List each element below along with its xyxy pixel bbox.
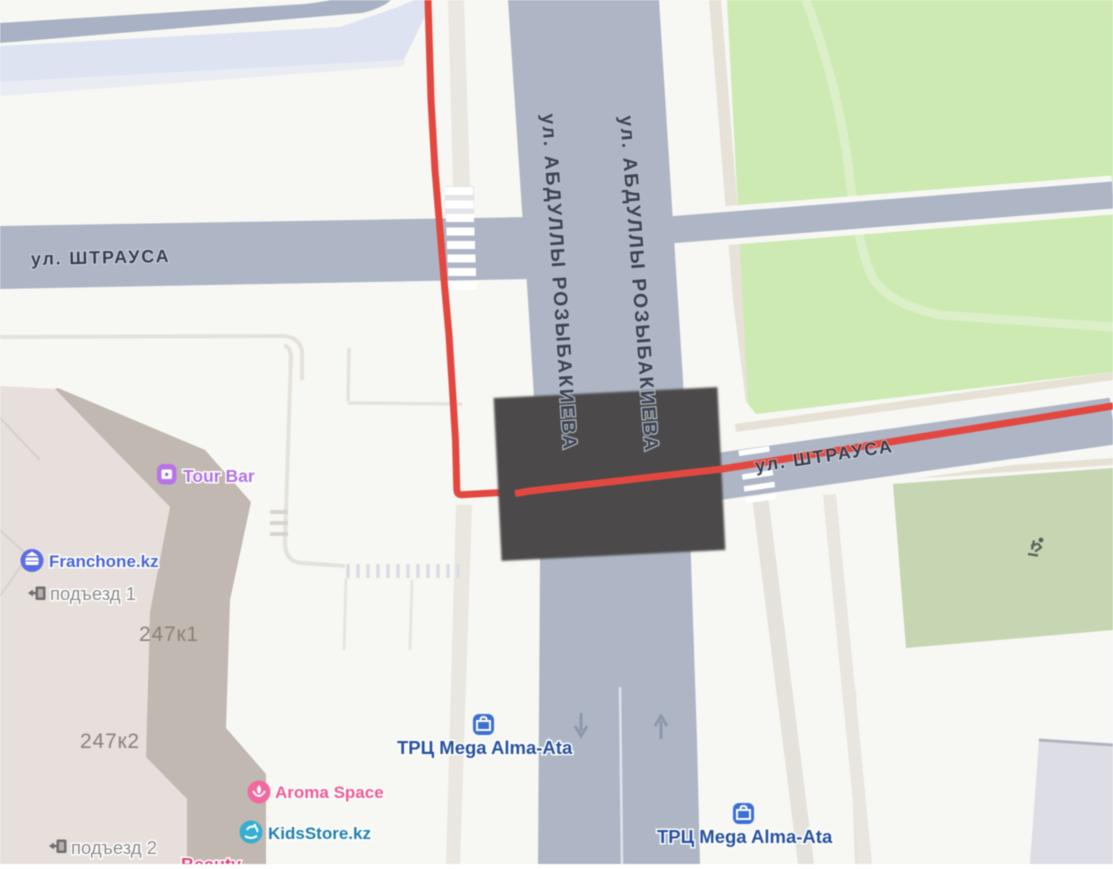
svg-text:247к1: 247к1 xyxy=(139,623,199,646)
svg-text:ТРЦ Mega Alma-Ata: ТРЦ Mega Alma-Ata xyxy=(657,826,833,847)
svg-text:Beauty: Beauty xyxy=(181,855,241,864)
svg-text:подъезд 2: подъезд 2 xyxy=(71,837,157,858)
svg-text:Aroma Space: Aroma Space xyxy=(275,783,384,802)
svg-text:ул. ШТРАУСА: ул. ШТРАУСА xyxy=(31,246,171,269)
svg-text:247к2: 247к2 xyxy=(80,730,140,753)
svg-text:Franchone.kz: Franchone.kz xyxy=(49,552,159,571)
svg-text:KidsStore.kz: KidsStore.kz xyxy=(268,824,371,843)
svg-text:ТРЦ Mega Alma-Ata: ТРЦ Mega Alma-Ata xyxy=(397,737,573,758)
svg-text:Tour Bar: Tour Bar xyxy=(183,466,255,486)
svg-text:подъезд 1: подъезд 1 xyxy=(50,583,136,604)
